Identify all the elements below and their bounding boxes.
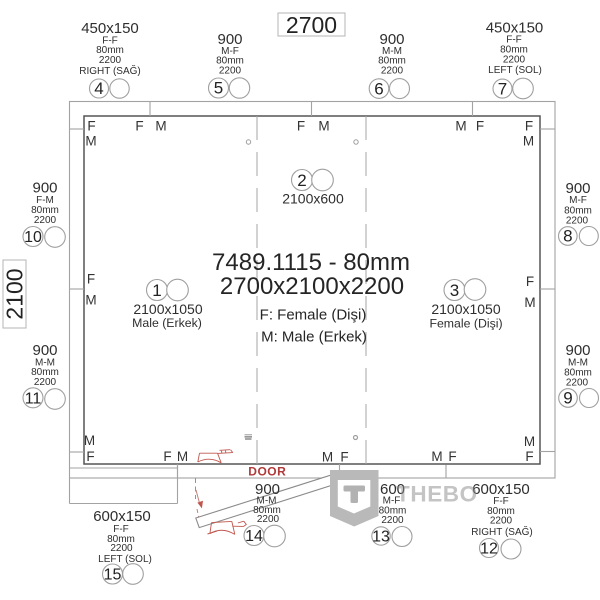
svg-text:2100x600: 2100x600 — [282, 190, 344, 206]
svg-text:4: 4 — [94, 79, 103, 98]
svg-text:F: F — [297, 119, 305, 134]
svg-text:LEFT (SOL): LEFT (SOL) — [488, 65, 542, 76]
svg-text:900: 900 — [32, 180, 57, 197]
svg-text:M: M — [455, 119, 466, 134]
svg-text:2200: 2200 — [566, 215, 589, 226]
svg-text:12: 12 — [480, 541, 498, 558]
svg-text:F: F — [87, 119, 95, 134]
svg-text:2200: 2200 — [99, 55, 122, 66]
svg-text:5: 5 — [214, 79, 223, 98]
svg-text:2200: 2200 — [257, 514, 280, 525]
svg-text:F: F — [476, 119, 484, 134]
svg-text:M: M — [177, 449, 188, 464]
svg-text:M: Male (Erkek): M: Male (Erkek) — [261, 328, 367, 345]
svg-text:F: F — [448, 449, 456, 464]
svg-text:7489.1115 - 80mm: 7489.1115 - 80mm — [212, 249, 410, 276]
svg-text:2100: 2100 — [2, 268, 28, 319]
svg-text:F: F — [525, 119, 533, 134]
svg-text:THEBO: THEBO — [396, 482, 478, 507]
svg-text:2200: 2200 — [566, 377, 589, 388]
svg-text:13: 13 — [372, 529, 390, 546]
svg-text:LEFT (SOL): LEFT (SOL) — [98, 554, 152, 565]
svg-text:M: M — [155, 119, 166, 134]
svg-text:2200: 2200 — [110, 543, 133, 554]
svg-text:2200: 2200 — [219, 65, 242, 76]
svg-text:600x150: 600x150 — [93, 508, 151, 525]
svg-text:7: 7 — [498, 79, 507, 98]
svg-text:2200: 2200 — [381, 65, 404, 76]
svg-text:M: M — [85, 134, 96, 149]
svg-text:Female (Dişi): Female (Dişi) — [429, 316, 502, 330]
svg-text:F: F — [163, 449, 171, 464]
svg-text:2200: 2200 — [34, 215, 57, 226]
svg-text:2: 2 — [297, 171, 306, 190]
svg-text:2200: 2200 — [381, 515, 404, 526]
svg-text:M: M — [318, 119, 329, 134]
svg-text:2200: 2200 — [34, 377, 57, 388]
svg-text:Male (Erkek): Male (Erkek) — [132, 316, 202, 330]
svg-text:F: Female (Dişi): F: Female (Dişi) — [260, 306, 367, 323]
svg-text:F: F — [526, 274, 534, 289]
svg-text:M: M — [524, 295, 535, 310]
svg-text:F: F — [525, 449, 533, 464]
svg-text:F: F — [135, 119, 143, 134]
svg-text:DOOR: DOOR — [248, 464, 286, 478]
svg-text:2700x2100x2200: 2700x2100x2200 — [220, 273, 404, 300]
svg-text:8: 8 — [563, 227, 572, 246]
svg-text:2700: 2700 — [286, 12, 337, 38]
svg-text:14: 14 — [245, 528, 263, 545]
svg-text:2200: 2200 — [490, 516, 513, 527]
svg-text:2200: 2200 — [503, 54, 526, 65]
svg-text:2100x1050: 2100x1050 — [133, 301, 203, 317]
svg-text:M: M — [524, 434, 535, 449]
svg-text:F: F — [87, 272, 95, 287]
svg-text:10: 10 — [24, 229, 42, 246]
svg-text:15: 15 — [104, 567, 122, 584]
svg-text:11: 11 — [25, 390, 42, 407]
svg-text:F: F — [340, 450, 348, 465]
svg-text:1: 1 — [152, 281, 161, 300]
svg-text:M: M — [84, 433, 95, 448]
svg-text:F: F — [86, 449, 94, 464]
svg-text:RIGHT (SAĞ): RIGHT (SAĞ) — [471, 525, 532, 538]
svg-text:M: M — [431, 449, 442, 464]
svg-text:3: 3 — [450, 281, 459, 300]
svg-text:M: M — [523, 134, 534, 149]
svg-text:9: 9 — [563, 389, 572, 408]
svg-text:RIGHT (SAĞ): RIGHT (SAĞ) — [79, 64, 140, 77]
svg-text:M: M — [322, 450, 333, 465]
svg-text:M: M — [85, 293, 96, 308]
svg-text:6: 6 — [374, 79, 383, 98]
svg-text:2100x1050: 2100x1050 — [431, 301, 501, 317]
